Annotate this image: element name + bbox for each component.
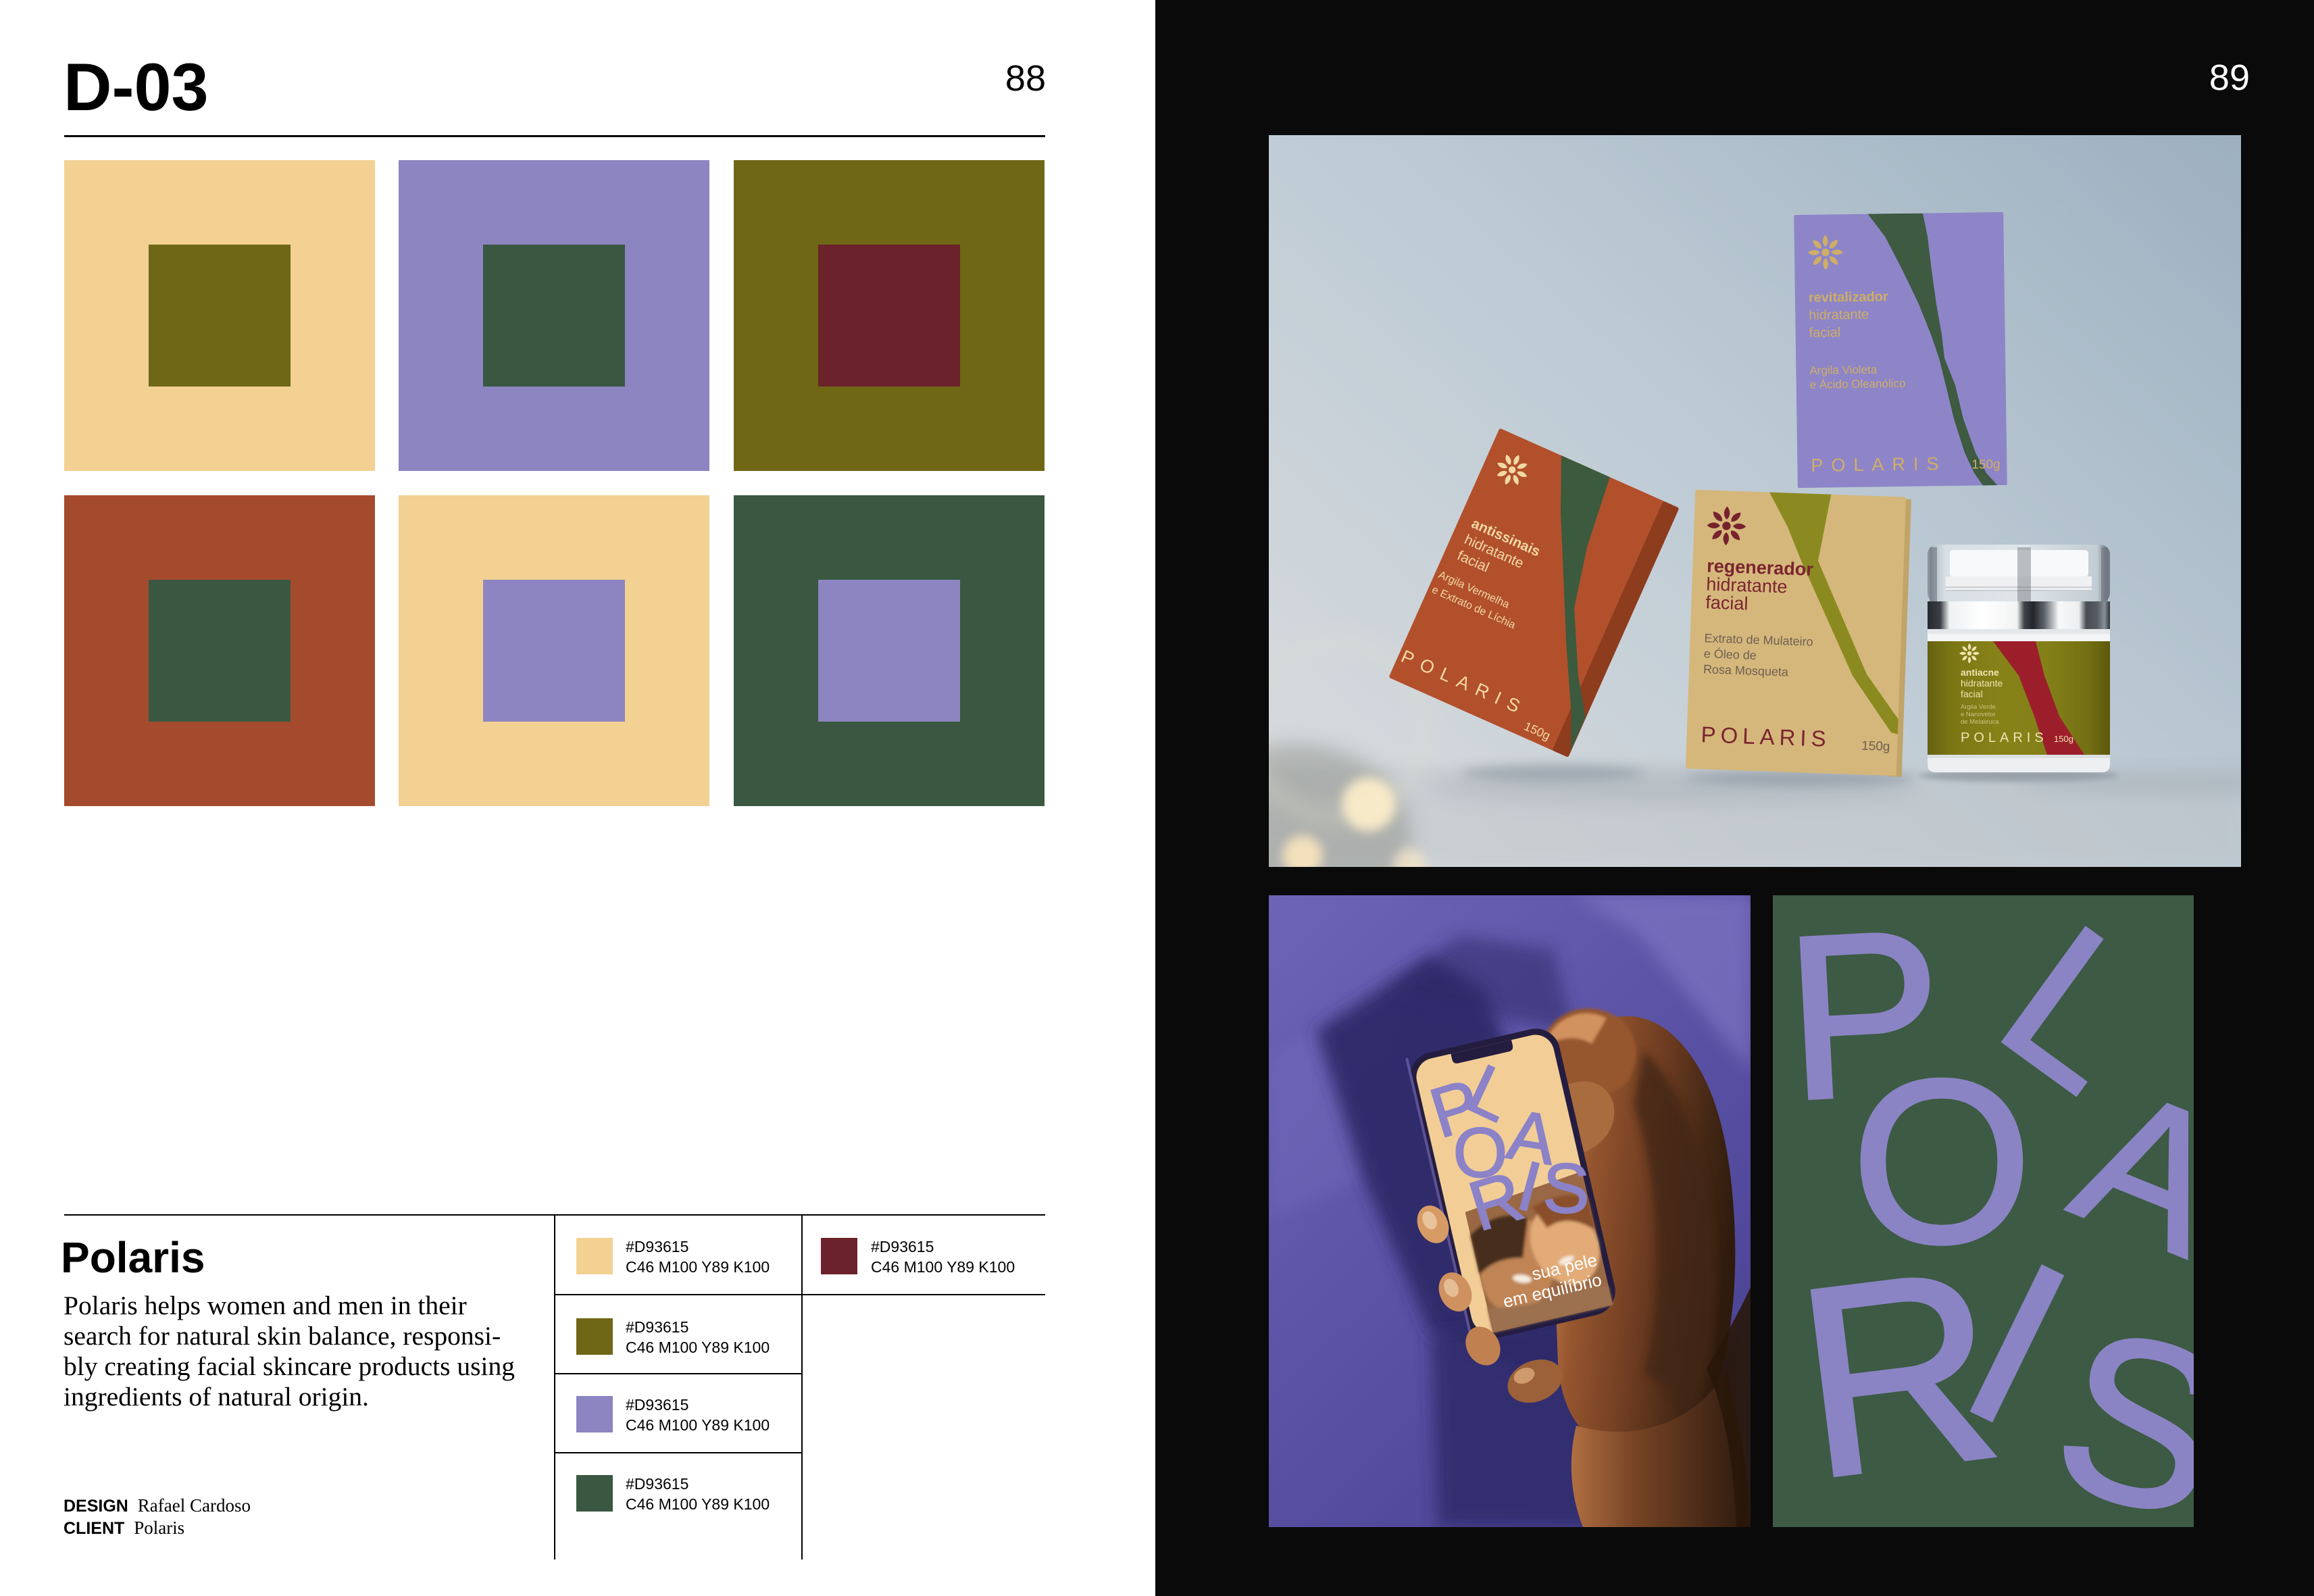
svg-text:150g: 150g: [1861, 739, 1890, 754]
svg-text:Argila Violeta: Argila Violeta: [1809, 363, 1878, 376]
svg-text:facial: facial: [1961, 689, 1983, 699]
svg-text:antiacne: antiacne: [1961, 667, 1999, 678]
svg-text:e Nanovetor: e Nanovetor: [1961, 711, 1996, 718]
svg-text:de Melaleuca: de Melaleuca: [1961, 718, 1999, 726]
svg-text:150g: 150g: [1971, 457, 2001, 472]
svg-text:Argila Verde: Argila Verde: [1961, 703, 1996, 711]
svg-text:hidratante: hidratante: [1961, 678, 2003, 689]
svg-text:POLARIS: POLARIS: [1701, 722, 1831, 751]
svg-text:revitalizador: revitalizador: [1809, 289, 1888, 305]
svg-text:facial: facial: [1809, 325, 1840, 341]
svg-text:hidratante: hidratante: [1809, 307, 1869, 323]
svg-text:S: S: [1542, 1149, 1590, 1228]
svg-text:e Óleo de: e Óleo de: [1703, 646, 1757, 662]
svg-text:e Ácido Oleanólico: e Ácido Oleanólico: [1810, 377, 1906, 391]
svg-text:facial: facial: [1705, 592, 1749, 614]
svg-text:POLARIS: POLARIS: [1961, 730, 2048, 745]
svg-text:150g: 150g: [2054, 734, 2073, 744]
svg-text:POLARIS: POLARIS: [1811, 453, 1946, 476]
